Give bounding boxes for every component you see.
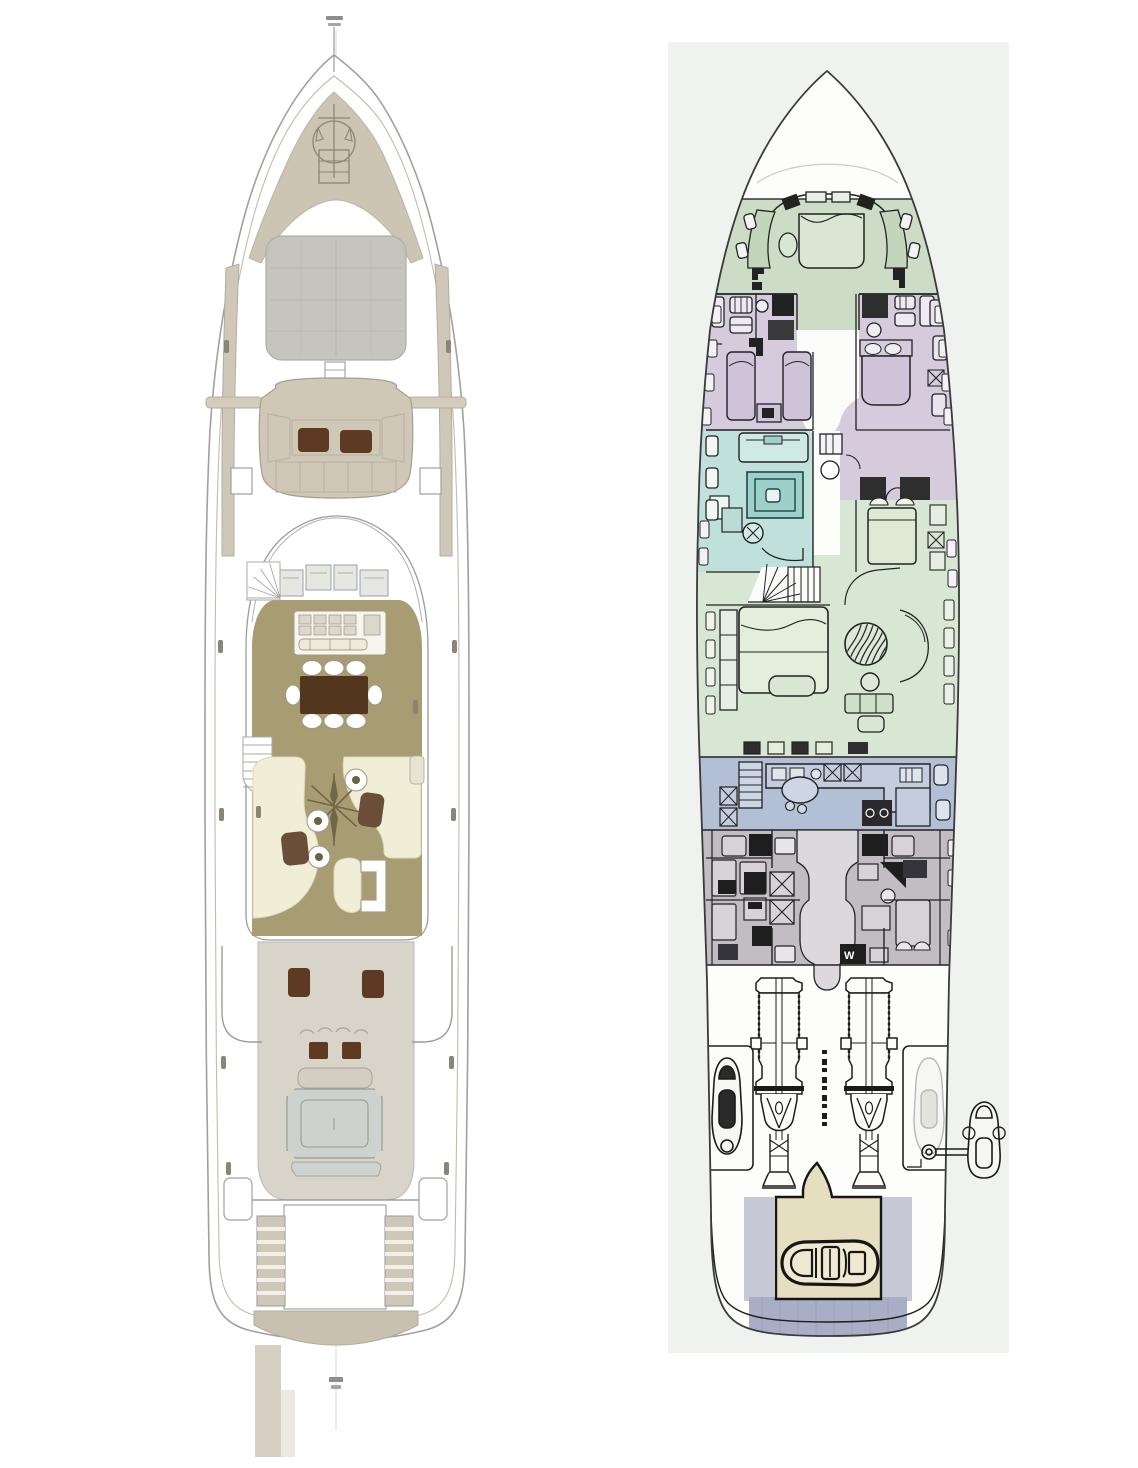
svg-text:W: W [844, 950, 855, 962]
